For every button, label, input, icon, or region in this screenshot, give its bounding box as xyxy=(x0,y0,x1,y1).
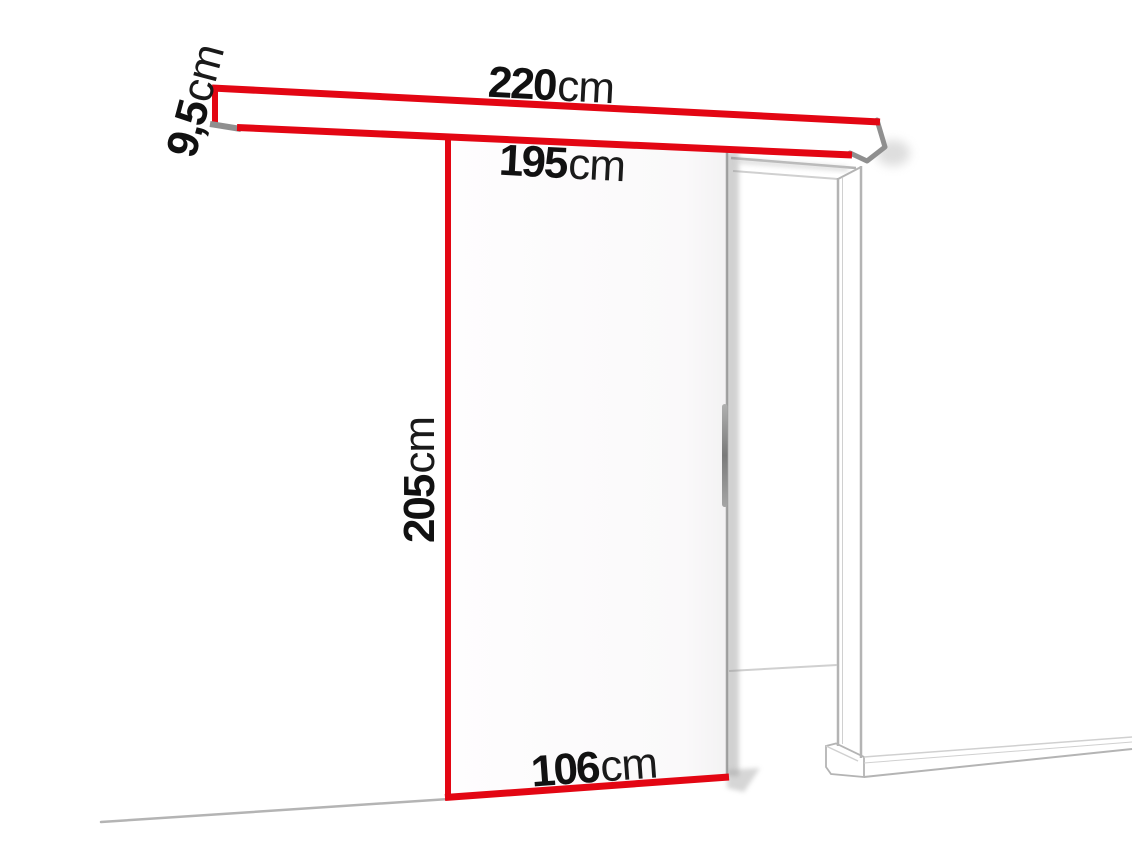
frame-plinth-edge xyxy=(826,746,858,761)
baseboard-face xyxy=(864,737,1132,777)
dimension-unit: cm xyxy=(556,61,615,113)
door-bottom-corner-shadow xyxy=(727,768,760,792)
dimension-unit: cm xyxy=(567,139,626,191)
dimension-unit: cm xyxy=(599,738,659,791)
dimension-rail-width: 220cm xyxy=(487,61,615,112)
door-surface xyxy=(448,135,727,798)
dimension-door-width: 106cm xyxy=(530,741,659,794)
diagram-stage: 220cm 195cm 9,5cm 205cm 106cm xyxy=(0,0,1133,849)
floor-line-left xyxy=(101,799,449,822)
dimension-value: 205 xyxy=(395,476,444,543)
frame-lintel-bottom-line xyxy=(733,171,838,179)
dimension-value: 106 xyxy=(529,743,600,797)
sliding-door-panel xyxy=(445,133,729,800)
dimension-value: 195 xyxy=(498,136,568,188)
door-handle xyxy=(722,404,728,507)
door-frame xyxy=(729,158,1132,777)
dimension-clearance-width: 195cm xyxy=(498,139,626,190)
dimension-door-height: 205cm xyxy=(398,417,442,543)
dimension-value: 220 xyxy=(487,58,557,110)
back-floor-line xyxy=(729,665,837,671)
dimension-unit: cm xyxy=(395,417,444,474)
